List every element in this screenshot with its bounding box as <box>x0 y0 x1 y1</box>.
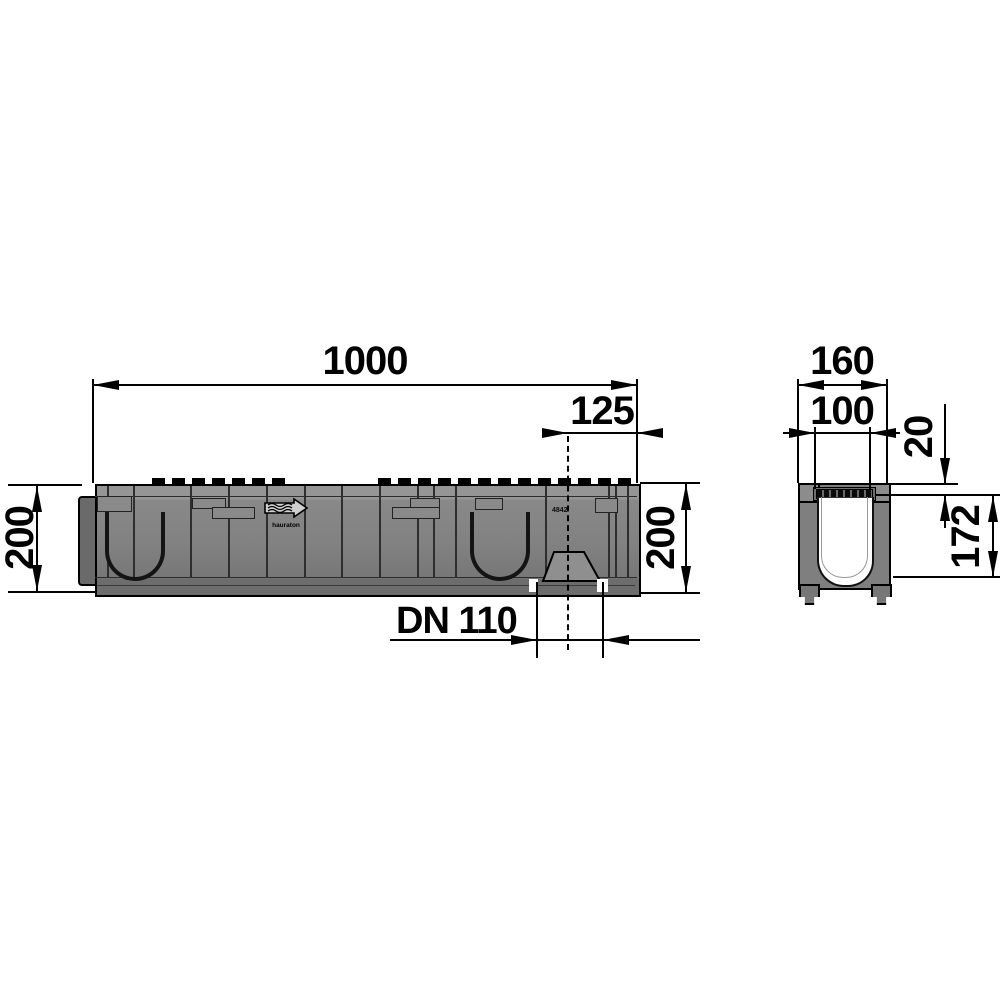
foot-left <box>799 584 820 605</box>
dim-label-rim-depth: 20 <box>898 372 940 502</box>
dim-label-inner-depth: 172 <box>945 472 987 602</box>
outlet-centerline <box>567 436 569 650</box>
lug-detail <box>475 498 503 510</box>
rib-line <box>341 486 343 578</box>
dimension-arrow <box>603 635 629 645</box>
dimension-arrow <box>681 566 691 592</box>
dim-label-outlet-offset: 125 <box>537 391 667 431</box>
flow-arrow-icon <box>263 497 309 519</box>
vertical-outlet-knockout-mid <box>470 512 530 581</box>
lug-detail <box>595 498 618 513</box>
extension-line <box>602 582 604 658</box>
dim-label-section-width: 160 <box>777 341 907 381</box>
technical-drawing-canvas: hauraton 4842 1000 125 200 200 <box>0 0 1000 1000</box>
extension-line <box>536 582 538 658</box>
lug-detail <box>212 507 255 519</box>
grate-slots-left <box>152 478 292 484</box>
brand-wordmark: hauraton <box>262 523 310 530</box>
rib-line <box>627 486 629 578</box>
dim-label-height-left: 200 <box>0 473 41 603</box>
dim-line-length <box>93 384 637 386</box>
dim-label-height-right: 200 <box>640 473 682 603</box>
extension-line <box>869 427 871 489</box>
dimension-arrow <box>988 496 998 522</box>
rib-line <box>379 486 381 578</box>
dim-label-outlet: DN 110 <box>396 602 517 640</box>
dimension-arrow <box>93 380 119 390</box>
dim-label-length: 1000 <box>300 341 430 381</box>
extension-line <box>92 379 94 483</box>
rib-line <box>228 486 230 578</box>
rib-line <box>455 486 457 578</box>
grate-slots-right <box>378 478 633 484</box>
top-band-line <box>95 496 637 497</box>
channel-inner-lining <box>821 497 868 578</box>
extension-line <box>814 427 816 489</box>
bottom-rim-line <box>97 585 635 586</box>
lug-detail <box>392 507 440 519</box>
foot-right <box>871 584 892 605</box>
part-number: 4842 <box>552 507 568 514</box>
lug-detail <box>97 496 132 512</box>
dimension-arrow <box>988 551 998 577</box>
dim-label-inner-width: 100 <box>777 391 907 431</box>
vertical-outlet-knockout-left <box>105 512 165 581</box>
brand-logo: hauraton <box>262 497 310 528</box>
